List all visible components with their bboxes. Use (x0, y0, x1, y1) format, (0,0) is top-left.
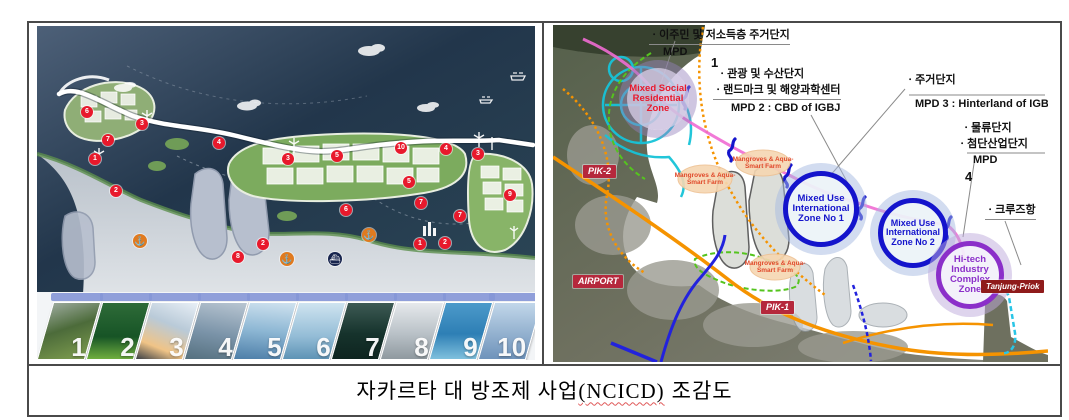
thumbnail-number: 6 (316, 332, 330, 360)
label-airport: AIRPORT (573, 275, 623, 288)
map-marker: 1 (89, 153, 101, 165)
caption-row: 자카르타 대 방조제 사업(NCICD)조감도 (29, 366, 1060, 413)
thumbnail-tag (394, 293, 446, 301)
map-marker: 3 (282, 153, 294, 165)
anchor-icon: ⚓ (362, 228, 376, 242)
map-marker: 2 (257, 238, 269, 250)
figure-frame: 6 3 7 4 1 3 5 10 4 3 2 2 8 5 7 6 7 (27, 21, 1062, 417)
thumbnail-tag (345, 293, 397, 301)
map-marker: 2 (110, 185, 122, 197)
right-panel: ㆍ이주민 및 저소득층 주거단지 MPD 1 ㆍ관광 및 수산단지 ㆍ랜드마크 … (544, 23, 1060, 364)
thumbnail-number: 3 (169, 332, 183, 360)
annotation-mpd1-title: ㆍ이주민 및 저소득층 주거단지 (649, 28, 790, 45)
left-panel: 6 3 7 4 1 3 5 10 4 3 2 2 8 5 7 6 7 (29, 23, 544, 364)
label-pik2: PIK-2 (583, 165, 616, 178)
map-marker: 7 (454, 210, 466, 222)
thumbnail-strip: 1 2 3 4 5 6 7 8 9 10 (37, 292, 535, 360)
zone-mixed-social-residential: Mixed Social Residential Zone (627, 68, 689, 130)
annotation-mpd3: MPD 3 : Hinterland of IGBJ (915, 97, 1048, 112)
map-marker: 5 (331, 150, 343, 162)
thumbnail-number: 4 (218, 332, 232, 360)
map-marker: 10 (395, 142, 407, 154)
annotation-mpd4-line1: ㆍ물류단지 (961, 121, 1012, 136)
map-marker: 7 (415, 197, 427, 209)
label-tanjung-priok: Tanjung-Priok (981, 280, 1044, 293)
thumbnail-tag (198, 293, 250, 301)
map-marker: 4 (440, 143, 452, 155)
map-marker: 3 (472, 148, 484, 160)
thumbnail-number: 10 (497, 332, 526, 360)
map-marker: 5 (403, 176, 415, 188)
anchor-icon: ⚓ (133, 234, 147, 248)
figure-nicid-birdseye: 6 3 7 4 1 3 5 10 4 3 2 2 8 5 7 6 7 (0, 0, 1069, 420)
caption-suffix: 조감도 (672, 379, 733, 403)
thumbnail-tag (149, 293, 201, 301)
port-icon: ⛴ (328, 252, 342, 266)
map-marker: 2 (439, 237, 451, 249)
annotation-mpd2: MPD 2 : CBD of IGBJ (731, 101, 840, 116)
map-marker: 7 (102, 134, 114, 146)
thumbnail-tag (296, 293, 348, 301)
label-mangroves-3: Mangroves & Aqua-Smart Farm (744, 260, 806, 275)
annotation-cruise-port: ㆍ크루즈항 (985, 203, 1036, 220)
thumbnail-number: 7 (365, 332, 379, 360)
annotation-mpd2-line1: ㆍ관광 및 수산단지 (717, 67, 804, 82)
thumbnail-tag (489, 293, 535, 301)
thumbnail-number: 1 (71, 332, 85, 360)
masterplan-rendering: 6 3 7 4 1 3 5 10 4 3 2 2 8 5 7 6 7 (37, 26, 535, 360)
thumbnail-number: 5 (267, 332, 281, 360)
thumbnail-tag (51, 293, 103, 301)
zone-mixed-use-international-1: Mixed Use International Zone No 1 (783, 171, 859, 247)
map-marker: 4 (213, 137, 225, 149)
map-marker: 6 (340, 204, 352, 216)
map-marker: 3 (136, 118, 148, 130)
annotation-mpd1: MPD (663, 45, 687, 60)
label-mangroves-2: Mangroves & Aqua-Smart Farm (732, 156, 794, 171)
anchor-icon: ⚓ (280, 252, 294, 266)
label-mangroves-1: Mangroves & Aqua-Smart Farm (674, 172, 736, 187)
annotation-mpd4-num: 4 (965, 169, 972, 184)
thumbnail-number: 2 (120, 332, 134, 360)
image-row: 6 3 7 4 1 3 5 10 4 3 2 2 8 5 7 6 7 (29, 23, 1060, 366)
thumbnail-number: 9 (463, 332, 477, 360)
annotation-mpd3-line1: ㆍ주거단지 (905, 73, 956, 88)
map-marker: 9 (504, 189, 516, 201)
zone-mixed-use-international-2: Mixed Use International Zone No 2 (878, 198, 948, 268)
thumbnail-tag (443, 293, 495, 301)
caption-text: 자카르타 대 방조제 사업 (356, 379, 578, 403)
thumbnail-number: 8 (414, 332, 428, 360)
satellite-plan: ㆍ이주민 및 저소득층 주거단지 MPD 1 ㆍ관광 및 수산단지 ㆍ랜드마크 … (553, 25, 1048, 362)
map-marker: 1 (414, 238, 426, 250)
thumbnail-tag (247, 293, 299, 301)
caption-code: (NCICD) (578, 379, 664, 403)
label-pik1: PIK-1 (761, 301, 794, 314)
annotation-mpd4-line2: ㆍ첨단산업단지 (957, 137, 1028, 152)
map-marker: 6 (81, 106, 93, 118)
figure-caption: 자카르타 대 방조제 사업(NCICD)조감도 (356, 375, 732, 405)
zone-hitech-industry-complex: Hi-tech Industry Complex Zone (936, 241, 1004, 309)
annotation-mpd4: MPD (973, 153, 997, 168)
thumbnail-tag (100, 293, 152, 301)
map-marker: 8 (232, 251, 244, 263)
annotation-mpd2-line2: ㆍ랜드마크 및 해양과학센터 (713, 83, 841, 100)
